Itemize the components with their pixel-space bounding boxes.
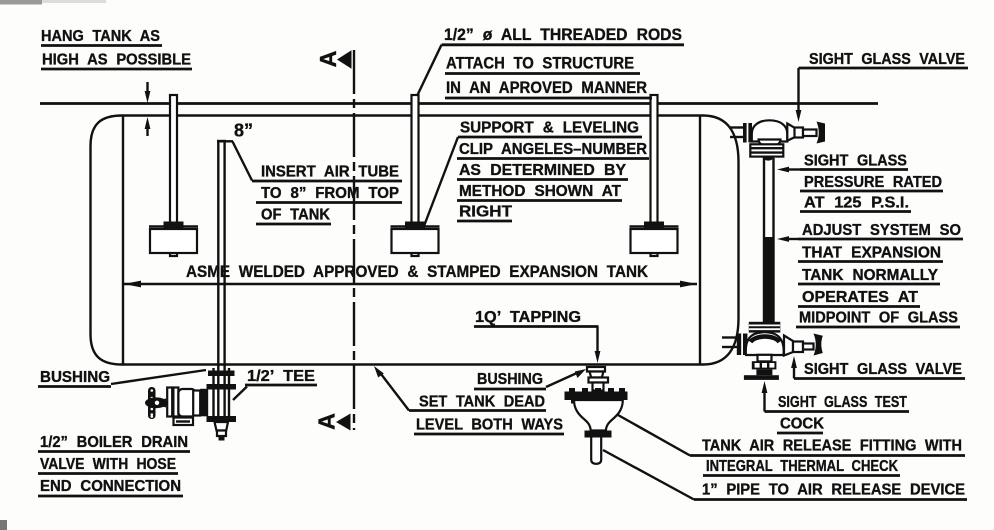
svg-text:METHOD SHOWN AT: METHOD SHOWN AT	[459, 183, 621, 200]
svg-text:1/2” BOILER DRAIN: 1/2” BOILER DRAIN	[40, 434, 188, 451]
svg-text:VALVE WITH HOSE: VALVE WITH HOSE	[40, 456, 176, 473]
svg-text:INSERT AIR TUBE: INSERT AIR TUBE	[261, 164, 399, 181]
svg-text:8”: 8”	[234, 121, 253, 141]
svg-text:A: A	[315, 51, 341, 68]
svg-text:1Q’ TAPPING: 1Q’ TAPPING	[475, 309, 581, 326]
svg-text:TO 8” FROM TOP: TO 8” FROM TOP	[261, 185, 399, 202]
svg-text:AT 125 P.S.I.: AT 125 P.S.I.	[804, 195, 909, 212]
svg-text:SET TANK DEAD: SET TANK DEAD	[419, 394, 545, 411]
svg-text:CLIP ANGELES–NUMBER: CLIP ANGELES–NUMBER	[459, 141, 647, 158]
svg-text:A: A	[314, 413, 340, 430]
svg-text:HIGH AS POSSIBLE: HIGH AS POSSIBLE	[42, 52, 191, 69]
svg-text:LEVEL BOTH WAYS: LEVEL BOTH WAYS	[416, 417, 563, 434]
svg-text:INTEGRAL THERMAL CHECK: INTEGRAL THERMAL CHECK	[706, 458, 898, 475]
svg-text:ASME WELDED APPROVED & STAMPED: ASME WELDED APPROVED & STAMPED EXPANSION…	[186, 262, 649, 281]
svg-text:COCK: COCK	[780, 416, 824, 433]
svg-text:TANK NORMALLY: TANK NORMALLY	[802, 267, 938, 284]
svg-text:RIGHT: RIGHT	[459, 204, 512, 221]
svg-text:PRESSURE RATED: PRESSURE RATED	[804, 174, 942, 191]
svg-text:1/2’ TEE: 1/2’ TEE	[247, 368, 315, 385]
svg-text:SIGHT GLASS TEST: SIGHT GLASS TEST	[778, 394, 907, 411]
svg-text:SIGHT GLASS VALVE: SIGHT GLASS VALVE	[809, 51, 965, 68]
svg-text:BUSHING: BUSHING	[40, 369, 110, 386]
svg-text:SIGHT GLASS VALVE: SIGHT GLASS VALVE	[804, 361, 962, 378]
svg-text:HANG TANK AS: HANG TANK AS	[41, 28, 160, 45]
svg-text:IN AN APROVED MANNER: IN AN APROVED MANNER	[446, 79, 647, 97]
svg-text:ATTACH TO STRUCTURE: ATTACH TO STRUCTURE	[446, 55, 634, 73]
svg-text:SUPPORT & LEVELING: SUPPORT & LEVELING	[460, 120, 639, 137]
svg-text:OPERATES AT: OPERATES AT	[802, 289, 918, 306]
svg-text:AS DETERMINED BY: AS DETERMINED BY	[459, 162, 626, 179]
svg-text:1” PIPE TO AIR RELEASE DEVICE: 1” PIPE TO AIR RELEASE DEVICE	[702, 482, 965, 499]
svg-text:SIGHT GLASS: SIGHT GLASS	[804, 153, 907, 170]
svg-text:ADJUST SYSTEM SO: ADJUST SYSTEM SO	[802, 222, 961, 239]
svg-text:TANK AIR RELEASE FITTING WITH: TANK AIR RELEASE FITTING WITH	[702, 438, 962, 455]
svg-text:BUSHING: BUSHING	[477, 371, 543, 388]
svg-text:MIDPOINT OF GLASS: MIDPOINT OF GLASS	[799, 310, 958, 327]
svg-text:THAT EXPANSION: THAT EXPANSION	[802, 245, 941, 262]
svg-text:END CONNECTION: END CONNECTION	[40, 478, 181, 495]
svg-text:1/2” ø ALL THREADED RODS: 1/2” ø ALL THREADED RODS	[444, 26, 682, 44]
svg-text:OF TANK: OF TANK	[261, 207, 330, 224]
